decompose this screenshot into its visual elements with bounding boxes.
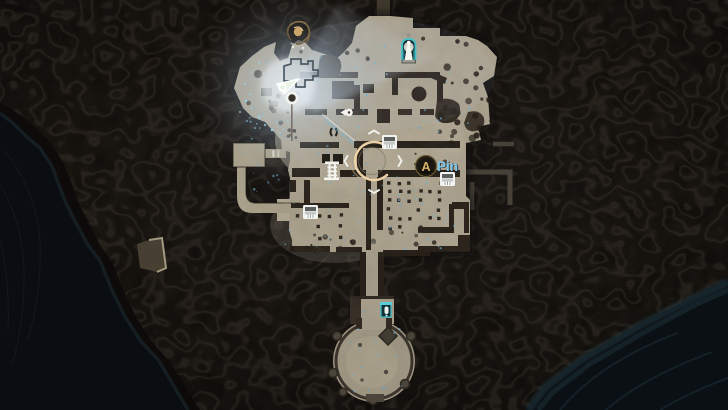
svg-text:A: A (421, 160, 430, 174)
svg-text:Pin: Pin (437, 159, 458, 174)
